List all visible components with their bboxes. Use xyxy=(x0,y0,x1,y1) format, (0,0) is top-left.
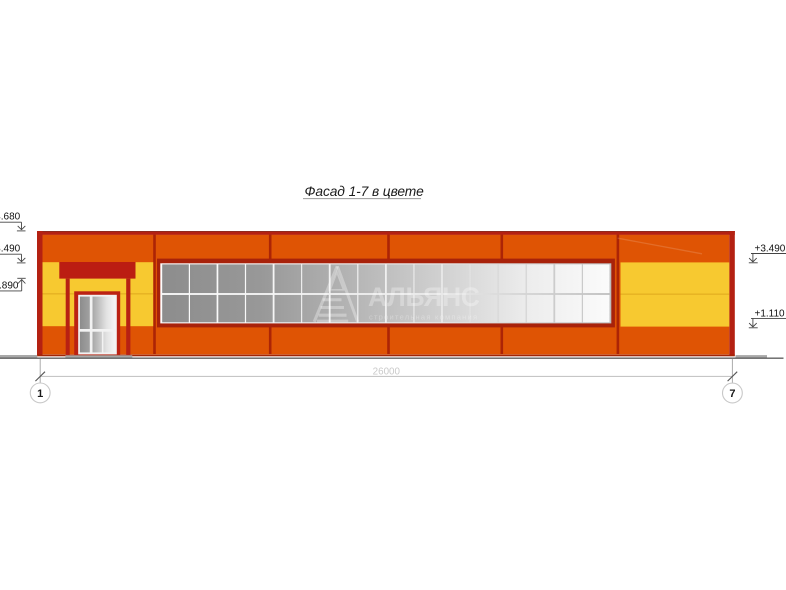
svg-text:+1.110: +1.110 xyxy=(755,308,786,319)
svg-text:+3.490: +3.490 xyxy=(755,244,786,255)
svg-text:АЛЬЯНС: АЛЬЯНС xyxy=(368,282,480,312)
svg-text:1: 1 xyxy=(37,388,43,400)
svg-text:+3.490: +3.490 xyxy=(0,243,21,254)
svg-text:строительная компания: строительная компания xyxy=(369,312,478,321)
svg-text:+0.890: +0.890 xyxy=(0,280,19,291)
svg-text:26000: 26000 xyxy=(373,366,401,377)
svg-text:+4.680: +4.680 xyxy=(0,211,21,222)
svg-text:Фасад 1-7 в цвете: Фасад 1-7 в цвете xyxy=(305,184,425,199)
svg-text:7: 7 xyxy=(729,388,735,400)
